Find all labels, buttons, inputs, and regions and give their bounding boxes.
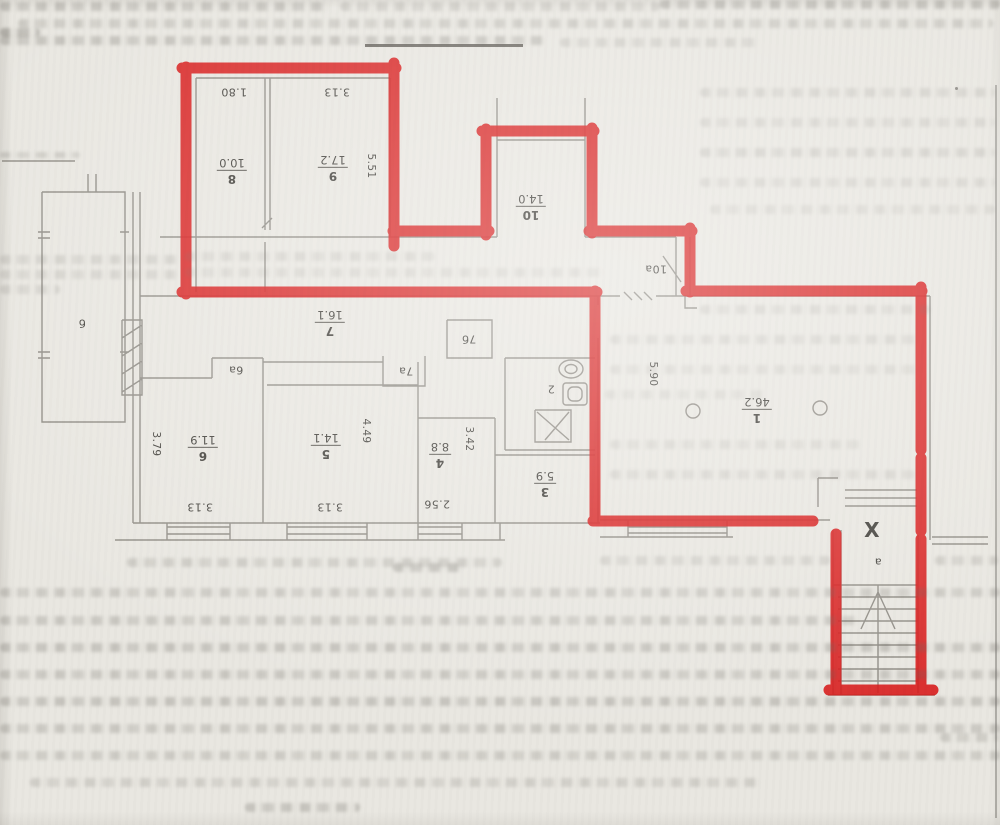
room-label-2: 2 [547, 383, 554, 396]
illegible-text-line [610, 470, 915, 479]
illegible-text-line [610, 365, 920, 374]
illegible-text-line [610, 440, 860, 449]
room-area: 10.0 [217, 157, 247, 171]
room-label-6: 611.9 [188, 434, 218, 462]
illegible-text-line [18, 19, 993, 28]
illegible-text-line [610, 335, 920, 344]
illegible-text-line [0, 616, 860, 625]
illegible-text-line [700, 148, 995, 157]
dim-3-13-top: 3.13 [324, 86, 350, 99]
illegible-text-line [340, 2, 660, 11]
text-underline [365, 44, 523, 47]
room-number: 4 [429, 455, 451, 469]
room-label-7: 716.1 [315, 309, 345, 337]
dim-2-56: 2.56 [424, 498, 450, 511]
illegible-text-line [0, 724, 1000, 733]
illegible-text-line [0, 270, 180, 279]
room-area: 11.9 [188, 434, 218, 448]
room-label-8: 810.0 [217, 157, 247, 185]
dim-1-80: 1.80 [221, 86, 247, 99]
dim-5-51: 5.51 [365, 154, 377, 179]
illegible-text-line [185, 252, 435, 261]
dim-3-13-bottom-mid: 3.13 [317, 501, 343, 514]
room-area: 16.1 [315, 309, 345, 323]
illegible-text-line [700, 88, 995, 97]
illegible-text-line [0, 670, 1000, 679]
illegible-text-line [30, 778, 760, 787]
room-number: 1 [742, 410, 772, 424]
room-number: 3 [534, 484, 556, 498]
room-area: 5.9 [534, 470, 556, 484]
column-mark [686, 404, 700, 418]
stair-x-mark: X [864, 518, 880, 542]
illegible-text-line [0, 643, 1000, 652]
illegible-text-line [0, 2, 330, 11]
illegible-text-line [245, 803, 360, 812]
illegible-text-line [935, 556, 998, 565]
room-label-3: 35.9 [534, 470, 556, 498]
dim-3-42: 3.42 [463, 427, 475, 452]
illegible-text-line [700, 305, 930, 314]
illegible-text-line [600, 556, 830, 565]
page-fold-line [995, 85, 997, 818]
dim-3-13-bottom-left: 3.13 [187, 501, 213, 514]
room-area: 17.2 [318, 154, 348, 168]
room-label-4: 48.8 [429, 441, 451, 469]
label-7a: 7а [399, 365, 414, 378]
illegible-text-line [0, 152, 80, 158]
room-number: 7 [315, 323, 345, 337]
illegible-text-line [0, 588, 1000, 597]
room-area: 8.8 [429, 441, 451, 455]
label-6a: 6а [229, 364, 244, 377]
label-10a: 10а [645, 263, 667, 276]
illegible-text-line [700, 178, 995, 187]
illegible-text-line [0, 28, 40, 37]
illegible-text-line [0, 255, 180, 264]
illegible-text-line [660, 0, 1000, 9]
sink-fixture [559, 360, 583, 378]
dim-3-79: 3.79 [150, 432, 162, 457]
illegible-text-line [185, 268, 605, 277]
room-label-10: 1014.0 [516, 193, 546, 221]
room-area: 14.0 [516, 193, 546, 207]
illegible-text-line [560, 38, 760, 47]
label-7b: 7б [462, 333, 477, 346]
illegible-text-line [0, 697, 1000, 706]
room-number: 8 [217, 171, 247, 185]
illegible-text-line [0, 285, 60, 294]
illegible-text-line [0, 751, 1000, 760]
room-number: 5 [311, 446, 341, 460]
room-number: 6 [188, 448, 218, 462]
illegible-text-line [605, 390, 765, 399]
room-label-5: 514.1 [311, 432, 341, 460]
illegible-text-line [940, 733, 998, 742]
label-stair-entrance: а [874, 556, 881, 569]
room-label-1: 146.2 [742, 396, 772, 424]
illegible-text-line [700, 118, 995, 127]
label-balcony: б [78, 317, 85, 330]
room-area: 14.1 [311, 432, 341, 446]
room-label-9: 917.2 [318, 154, 348, 182]
room-number: 9 [318, 168, 348, 182]
dim-4-49: 4.49 [360, 419, 372, 444]
illegible-text-line [710, 205, 995, 214]
scanned-document-page: 810.0917.21014.0716.1611.9514.148.835.91… [0, 0, 1000, 825]
room-number: 10 [516, 207, 546, 221]
column-mark [813, 401, 827, 415]
ink-speck [955, 87, 958, 90]
illegible-text-line [393, 563, 463, 572]
